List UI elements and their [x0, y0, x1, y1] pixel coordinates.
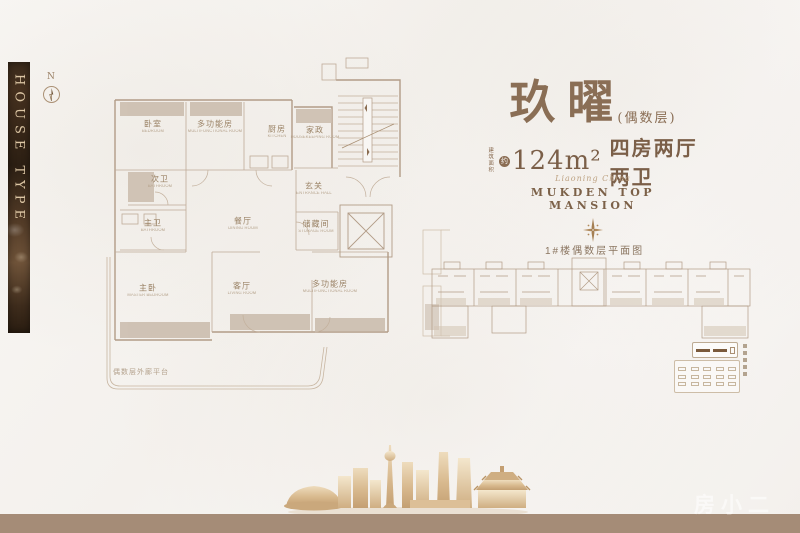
house-type-label: HOUSE TYPE	[12, 74, 27, 225]
door-arcs	[151, 170, 390, 332]
building-diagram-label: 1#楼偶数层平面图	[545, 242, 644, 257]
watermark: 房小二	[694, 489, 775, 519]
brand-name: MUKDEN TOP MANSION	[488, 186, 698, 212]
site-plan-highlight	[692, 342, 738, 358]
site-plan-caption-marks	[743, 344, 747, 376]
brand-script-line: Liaoning China	[488, 174, 698, 183]
area-value: 124m²	[512, 146, 602, 176]
title-block: 玖曜(偶数层)	[488, 78, 698, 126]
room-label-housekeeping: 家政 HOUSEKEEPING ROOM	[279, 125, 351, 142]
area-prefix: 建筑 面积	[488, 148, 497, 174]
poster-canvas: HOUSE TYPE N	[0, 0, 800, 533]
legend-square	[730, 347, 735, 354]
room-label-master-bath: 主卫 BATHROOM	[135, 218, 171, 235]
room-label-bedroom: 卧室 BEDROOM	[137, 119, 169, 136]
compass-star-icon	[582, 218, 604, 242]
site-plan-row	[678, 367, 736, 371]
house-type-banner: HOUSE TYPE	[8, 62, 30, 333]
room-label-multifunction-bottom: 多功能房 MULTIFUNCTIONAL ROOM	[290, 279, 370, 296]
brand-block: Liaoning China MUKDEN TOP MANSION	[488, 174, 698, 247]
room-label-multifunction-top: 多功能房 MULTIFUNCTIONAL ROOM	[175, 119, 255, 136]
room-label-storage: 储藏间 STORAGE ROOM	[290, 219, 342, 236]
room-label-master-bedroom: 主卧 MASTER BEDROOM	[118, 283, 178, 300]
highlighted-building-bar	[696, 349, 710, 352]
approx-circle-badge: 约	[499, 156, 510, 167]
page-title: 玖曜	[509, 78, 625, 126]
highlighted-building-bar	[713, 349, 727, 352]
compass-needle-icon	[46, 88, 57, 101]
compass-north-label: N	[47, 72, 55, 82]
compass-icon	[43, 86, 60, 103]
footer-bar	[0, 514, 800, 533]
site-plan-row	[678, 382, 736, 386]
room-label-dining: 餐厅 DINING ROOM	[221, 216, 265, 233]
platform-note: 偶数层外廊平台	[113, 367, 169, 377]
room-label-second-bath: 次卫 BATHROOM	[142, 174, 178, 191]
site-plan-inset	[674, 360, 740, 393]
building-floor-diagram	[428, 256, 758, 348]
city-skyline-illustration	[280, 442, 536, 518]
title-suffix: (偶数层)	[617, 111, 676, 126]
elevator-shaft	[340, 205, 392, 257]
site-plan-row	[678, 375, 736, 379]
room-label-entrance: 玄关 ENTRANCE HALL	[288, 181, 340, 198]
room-label-living: 客厅 LIVING ROOM	[221, 281, 263, 298]
